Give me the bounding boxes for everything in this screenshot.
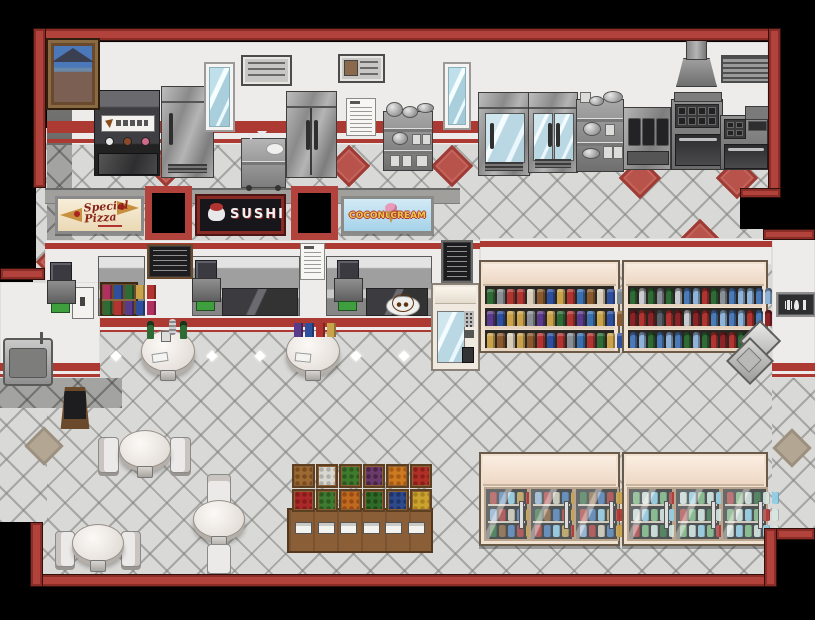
product-item: [103, 301, 112, 315]
product-item: [698, 492, 705, 504]
wall-vent: [721, 55, 772, 83]
product-item: [535, 525, 542, 537]
product-item: [507, 333, 515, 348]
product-item: [577, 333, 585, 348]
product-item: [763, 509, 770, 521]
product-item: [772, 492, 779, 504]
product-item: [587, 311, 595, 326]
border-bottom: [33, 574, 777, 587]
bowl: [583, 122, 601, 136]
card-reader: [338, 301, 357, 311]
cash-register[interactable]: [192, 260, 222, 314]
border-left-upper: [33, 28, 46, 188]
product-item: [639, 310, 646, 326]
freezer-door[interactable]: [574, 487, 619, 541]
product-item: [711, 310, 718, 326]
product-item: [698, 509, 705, 521]
cash-register[interactable]: [47, 262, 75, 314]
product-item: [630, 288, 637, 304]
product-item: [680, 509, 687, 521]
freezer-handle: [564, 501, 569, 529]
freezer-door[interactable]: [484, 487, 529, 541]
pizza-box[interactable]: [723, 328, 779, 378]
freezer-handle: [711, 501, 716, 529]
freezer-case-dairy[interactable]: [622, 452, 768, 546]
product-item: [517, 333, 525, 348]
border-top: [33, 28, 781, 41]
dining-table[interactable]: [193, 500, 245, 538]
product-item: [642, 492, 649, 504]
product-item: [736, 492, 743, 504]
stall-stripe-bottom-thin: [45, 330, 480, 332]
product-item: [738, 288, 745, 304]
display-case: [222, 288, 298, 316]
product-item: [589, 509, 596, 521]
plate: [603, 91, 623, 103]
menu-poster: [300, 243, 325, 280]
product-item: [537, 289, 545, 304]
product-item: [487, 311, 495, 326]
cup: [390, 155, 400, 167]
product-item: [702, 288, 709, 304]
produce-bin-zucchini: [316, 489, 339, 513]
product-item: [648, 332, 655, 348]
product-item: [642, 525, 649, 537]
product-item: [577, 311, 585, 326]
sushi-icon: [208, 206, 225, 221]
sign-text-lines: [248, 62, 285, 79]
product-item: [684, 288, 691, 304]
product-item: [535, 509, 542, 521]
produce-bin-bananas: [410, 489, 433, 513]
ice-cream-machine-label: [101, 115, 155, 132]
tap-coil: [169, 319, 176, 335]
chair[interactable]: [207, 544, 231, 574]
product-item: [745, 492, 752, 504]
vending-window: [437, 311, 465, 363]
product-item: [547, 289, 555, 304]
product-item: [487, 289, 495, 304]
product-item: [651, 509, 658, 521]
product-item: [680, 525, 687, 537]
freezer-door[interactable]: [674, 487, 721, 541]
product-item: [580, 492, 587, 504]
border-annex-top: [763, 229, 815, 240]
oven-door: [675, 134, 721, 166]
serving-plate: [266, 143, 284, 155]
product-item: [729, 310, 736, 326]
border-right-upper: [768, 28, 781, 198]
burner-grid: [724, 119, 746, 139]
product-item: [598, 525, 605, 537]
hood-duct: [686, 40, 707, 60]
product-item: [727, 492, 734, 504]
product-item: [597, 289, 605, 304]
receipt-paper: [151, 352, 168, 363]
product-item: [589, 492, 596, 504]
fridge-grille: [485, 162, 523, 171]
product-item: [745, 509, 752, 521]
freezer-handle: [758, 501, 763, 529]
flavor-button-chocolate[interactable]: [123, 137, 132, 146]
range-grill-combo: [720, 115, 768, 170]
product-item: [630, 310, 637, 326]
product-item: [508, 525, 515, 537]
grocery-shelf-unit[interactable]: [479, 260, 620, 353]
wall-mirror: [204, 62, 235, 132]
product-item: [747, 310, 754, 326]
product-item: [633, 509, 640, 521]
product-item: [736, 509, 743, 521]
product-item: [720, 288, 727, 304]
shelf-top-band: [483, 264, 616, 286]
menu-list-lines: [350, 107, 372, 132]
wine-bottle: [180, 321, 187, 339]
switch-toggle: [80, 297, 85, 306]
freezer-door[interactable]: [627, 487, 674, 541]
price-tag: [295, 522, 312, 534]
product-item: [745, 525, 752, 537]
top-right-doorway[interactable]: [740, 198, 815, 229]
bowl: [402, 106, 418, 118]
product-item: [136, 285, 145, 299]
pretzel: [392, 294, 414, 312]
utensils-wall-plaque: [776, 292, 815, 317]
pot-rack: [383, 111, 433, 171]
product-item: [597, 311, 605, 326]
produce-bin-cucumbers: [339, 464, 362, 488]
freezer-door[interactable]: [721, 487, 768, 541]
product-item: [103, 285, 112, 299]
chair[interactable]: [170, 437, 191, 473]
cup: [402, 155, 412, 167]
cup: [605, 124, 615, 136]
menu-chalkboard-pizza[interactable]: [147, 244, 193, 279]
produce-bin-onions: [292, 464, 315, 488]
plate-stack: [417, 103, 434, 113]
dining-table[interactable]: [72, 524, 124, 562]
product-item: [633, 492, 640, 504]
product-item: [567, 289, 575, 304]
burner-grid: [675, 104, 719, 128]
trolley-wheel: [275, 185, 281, 191]
border-left-door-sill: [0, 268, 45, 280]
product-item: [589, 525, 596, 537]
product-item: [147, 285, 156, 299]
product-item: [557, 311, 565, 326]
shelf-top-band: [626, 264, 764, 286]
table-books: [293, 323, 337, 337]
product-item: [765, 310, 772, 326]
picture-frame: [46, 38, 100, 110]
product-item: [684, 332, 691, 348]
product-item: [607, 289, 615, 304]
product-item: [580, 525, 587, 537]
freezer-door[interactable]: [529, 487, 574, 541]
product-item: [597, 333, 605, 348]
ice-cream-machine[interactable]: [94, 90, 160, 176]
product-item: [490, 525, 497, 537]
product-item: [490, 509, 497, 521]
product-item: [657, 310, 664, 326]
stall-stripe-top: [45, 243, 480, 249]
product-item: [587, 289, 595, 304]
freezer-case-food[interactable]: [479, 452, 620, 546]
product-item: [490, 492, 497, 504]
pot: [392, 132, 408, 145]
freezer-handle: [519, 501, 524, 529]
product-item: [527, 289, 535, 304]
product-item: [316, 323, 325, 337]
product-item: [517, 289, 525, 304]
product-item: [736, 525, 743, 537]
product-item: [693, 332, 700, 348]
wall-mirror: [443, 62, 471, 130]
product-item: [544, 525, 551, 537]
product-item: [639, 288, 646, 304]
label-script: [116, 120, 148, 126]
product-item: [693, 310, 700, 326]
pizza-sign-line2: Pizza: [84, 210, 117, 225]
product-item: [125, 301, 134, 315]
chalk-menu-lines: [153, 250, 187, 273]
spoon-icon: [794, 300, 799, 310]
drink-shelf-row: [628, 308, 762, 329]
wall-menu-list: [346, 98, 376, 136]
register-body: [334, 278, 363, 302]
produce-bin-garlic: [316, 464, 339, 488]
product-item: [527, 333, 535, 348]
price-tags: [295, 522, 425, 534]
fridge-handle: [314, 120, 318, 150]
product-item: [553, 509, 560, 521]
menu-lines: [304, 252, 321, 276]
product-item: [508, 492, 515, 504]
cup: [412, 134, 421, 145]
plate-stack: [582, 148, 600, 159]
price-tag: [340, 522, 357, 534]
stall-doorway[interactable]: [291, 186, 338, 240]
product-item: [507, 289, 515, 304]
glass-door-fridge-single[interactable]: [478, 92, 530, 176]
sushi-stall-sign: SUSHI: [197, 196, 284, 234]
faucet: [40, 332, 43, 344]
vending-header: [435, 287, 476, 304]
oven-door: [724, 144, 768, 169]
product-item: [497, 311, 505, 326]
pizza-slice-icon: [60, 208, 82, 222]
price-tag: [408, 522, 425, 534]
produce-bin-apples: [292, 489, 315, 513]
floor-left-exit: [0, 408, 47, 522]
icecream-sign-word2: CREAM: [390, 211, 426, 221]
product-item: [499, 525, 506, 537]
freezer-handle: [664, 501, 669, 529]
product-item: [689, 509, 696, 521]
sink[interactable]: [3, 338, 53, 386]
glass-door-fridge-double[interactable]: [528, 92, 578, 173]
pot: [386, 102, 403, 117]
product-item: [499, 509, 506, 521]
product-item: [607, 333, 615, 348]
product-item: [648, 310, 655, 326]
product-item: [507, 311, 515, 326]
produce-bin-green-beans: [363, 489, 386, 513]
produce-stand[interactable]: [287, 508, 433, 553]
product-item: [711, 288, 718, 304]
trolley-wheel: [246, 185, 252, 191]
product-item: [657, 332, 664, 348]
product-item: [553, 492, 560, 504]
fridge-handle: [556, 123, 560, 147]
chair[interactable]: [121, 531, 141, 567]
fork-icon: [787, 300, 790, 310]
fryer-basket: [656, 118, 669, 146]
product-item: [763, 492, 770, 504]
product-item: [553, 525, 560, 537]
product-item: [720, 310, 727, 326]
dish-shelf: [576, 99, 624, 172]
product-item: [727, 509, 734, 521]
service-trolley: [241, 138, 286, 188]
product-item: [666, 310, 673, 326]
grill-plate: [748, 121, 767, 131]
product-item: [765, 288, 772, 304]
product-item: [693, 288, 700, 304]
stall-stripe-bottom: [45, 318, 480, 327]
product-item: [547, 311, 555, 326]
product-item: [598, 509, 605, 521]
price-tag: [385, 522, 402, 534]
vending-dispenser[interactable]: [462, 347, 474, 363]
machine-lower-door: [98, 153, 158, 175]
grocery-shelf-row: [485, 286, 614, 307]
produce-bin-blueberries: [386, 489, 409, 513]
flavor-button-strawberry[interactable]: [141, 137, 150, 146]
drink-shelf-row: [628, 286, 762, 307]
product-item: [648, 288, 655, 304]
product-item: [689, 525, 696, 537]
product-item: [727, 525, 734, 537]
product-item: [487, 333, 495, 348]
stall-doorway[interactable]: [145, 186, 192, 240]
freezer-handle: [609, 501, 614, 529]
product-item: [756, 288, 763, 304]
fridge-grille: [535, 159, 571, 168]
product-item: [666, 288, 673, 304]
game-viewport[interactable]: Special Pizza SUSHI COCONUT CREAM: [0, 0, 815, 620]
product-item: [729, 288, 736, 304]
product-item: [544, 509, 551, 521]
product-item: [675, 288, 682, 304]
vending-machine[interactable]: [431, 283, 480, 371]
product-item: [587, 333, 595, 348]
register-screen: [50, 262, 72, 281]
left-doorway[interactable]: [0, 188, 36, 268]
cup: [422, 134, 431, 145]
product-item: [327, 323, 336, 337]
menu-chalkboard-drinks[interactable]: [441, 240, 473, 283]
product-item: [702, 310, 709, 326]
fridge-grille: [168, 164, 207, 173]
register-body: [192, 278, 221, 302]
coin-slot[interactable]: [464, 330, 474, 338]
bookshelf-row: [102, 301, 136, 315]
range-eight-burner: [671, 99, 723, 170]
product-item: [702, 332, 709, 348]
notice-photo: [344, 60, 358, 76]
produce-bin-eggplants: [363, 464, 386, 488]
grocery-shelf-row: [485, 308, 614, 329]
flavor-button-vanilla[interactable]: [105, 137, 114, 146]
produce-bins: [292, 464, 432, 512]
product-item: [738, 310, 745, 326]
product-item: [147, 301, 156, 315]
card-reader: [51, 303, 70, 313]
product-item: [680, 492, 687, 504]
product-item: [557, 333, 565, 348]
product-item: [567, 311, 575, 326]
product-item: [535, 492, 542, 504]
fridge-handle: [548, 123, 552, 147]
fryer-basket: [642, 118, 655, 146]
border-bottom-right-horiz: [776, 528, 815, 540]
price-tag: [363, 522, 380, 534]
product-item: [639, 332, 646, 348]
product-item: [598, 492, 605, 504]
cup: [416, 155, 428, 167]
register-screen: [337, 260, 359, 279]
dining-table[interactable]: [119, 430, 171, 468]
product-item: [125, 285, 134, 299]
product-item: [547, 333, 555, 348]
chalk-menu-lines: [447, 246, 467, 277]
cash-register[interactable]: [334, 260, 364, 314]
knife-icon: [803, 300, 806, 310]
product-item: [497, 333, 505, 348]
border-bottom-left: [30, 522, 43, 587]
chair[interactable]: [55, 531, 75, 567]
product-item: [557, 289, 565, 304]
steel-fridge-double[interactable]: [286, 91, 337, 178]
a-frame-board: [64, 391, 86, 419]
chair[interactable]: [98, 437, 119, 473]
product-item: [294, 323, 303, 337]
product-item: [527, 311, 535, 326]
product-item: [711, 332, 718, 348]
cup: [613, 146, 623, 159]
wine-bottle: [147, 321, 154, 339]
product-item: [633, 525, 640, 537]
table-pedestal: [305, 370, 321, 381]
product-item: [544, 492, 551, 504]
cup: [603, 146, 613, 159]
product-item: [508, 509, 515, 521]
product-item: [772, 509, 779, 521]
product-item: [675, 332, 682, 348]
fryer-station: [623, 107, 671, 170]
icecream-stall-sign: COCONUT CREAM: [341, 196, 434, 234]
vending-keypad[interactable]: [464, 311, 474, 327]
notice-text-lines: [360, 61, 378, 76]
bookshelf-row: [102, 284, 136, 301]
product-item: [114, 301, 123, 315]
product-item: [607, 311, 615, 326]
receipt-paper: [295, 352, 312, 363]
sushi-sign-text: SUSHI: [230, 207, 285, 222]
fridge-handle: [169, 113, 173, 145]
wall-sign-board: [241, 55, 292, 86]
